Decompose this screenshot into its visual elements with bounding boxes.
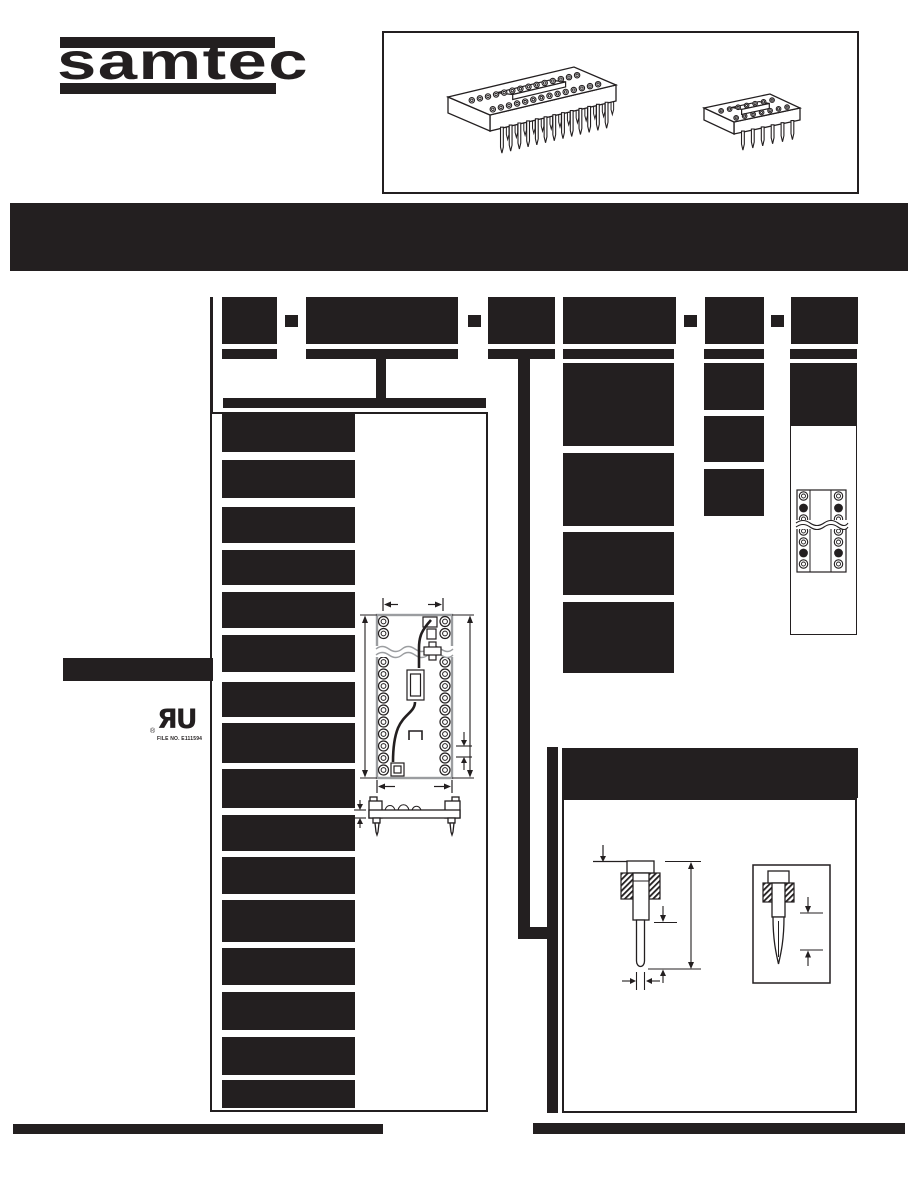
redacted-option-row xyxy=(222,592,355,628)
logo-bar-bottom xyxy=(60,83,276,94)
dash-separator xyxy=(684,315,697,327)
redacted-option-block xyxy=(563,602,674,673)
pin-detail-left-bar xyxy=(547,747,558,1113)
redacted-option-row xyxy=(222,900,355,942)
dash-separator xyxy=(468,315,481,327)
redacted-option-row xyxy=(222,682,355,717)
redacted-option-row xyxy=(222,413,355,452)
product-illustrations xyxy=(384,33,857,192)
socket-top-and-side-view-drawing xyxy=(352,594,492,846)
redacted-option-row xyxy=(222,815,355,851)
redacted-option-row xyxy=(222,723,355,763)
part-number-segment-6 xyxy=(791,297,858,344)
part-number-segment-2 xyxy=(306,297,458,344)
segment-underline-6 xyxy=(790,349,857,359)
redacted-option-row xyxy=(222,1080,355,1108)
catalog-page: samtec ЯU ® FILE NO. E11 xyxy=(0,0,918,1188)
options-panel-header-redacted xyxy=(223,398,486,408)
press-fit-pin-drawing xyxy=(753,865,830,983)
redacted-option-row xyxy=(222,460,355,498)
segment-underline-1 xyxy=(222,349,277,359)
redacted-option-block xyxy=(704,469,764,516)
segment-underline-3 xyxy=(488,349,555,359)
wide-dip-socket-illustration xyxy=(448,67,616,153)
ul-recognized-component-mark-icon: ЯU xyxy=(157,706,196,733)
dash-separator xyxy=(285,315,298,327)
connector-stub-segment2 xyxy=(376,358,386,399)
socket-side-view xyxy=(369,797,460,835)
redacted-option-row xyxy=(222,857,355,894)
narrow-dip-socket-illustration xyxy=(704,94,800,150)
dimension-lines xyxy=(377,780,452,793)
part-number-segment-1 xyxy=(222,297,277,344)
series-side-tab-redacted xyxy=(63,658,213,681)
redacted-option-block xyxy=(563,453,674,526)
polarity-pin-diagram xyxy=(790,425,857,635)
ul-file-number: FILE NO. E111594 xyxy=(157,736,202,742)
part-number-segment-5 xyxy=(705,297,764,344)
side-view-contacts xyxy=(385,805,421,810)
redacted-option-row xyxy=(222,550,355,585)
registered-trademark-symbol: ® xyxy=(150,728,155,735)
redacted-option-row xyxy=(222,635,355,672)
logo-wordmark: samtec xyxy=(57,36,309,88)
footer-bar-right xyxy=(533,1123,905,1134)
dash-separator xyxy=(771,315,784,327)
part-number-segment-3 xyxy=(488,297,555,344)
pin-detail-drawings xyxy=(564,800,855,1111)
dimension-lines xyxy=(383,598,443,611)
redacted-option-row xyxy=(222,507,355,543)
connector-line-left xyxy=(210,297,213,415)
redacted-option-block xyxy=(563,532,674,595)
redacted-option-row xyxy=(222,948,355,985)
redacted-option-block xyxy=(790,363,857,425)
title-banner-redacted xyxy=(10,203,908,271)
segment-underline-5 xyxy=(704,349,764,359)
footer-bar-left xyxy=(13,1124,383,1134)
connector-line-segment3 xyxy=(518,359,530,939)
pin-detail-header-redacted xyxy=(562,748,858,798)
segment-underline-4 xyxy=(563,349,674,359)
redacted-option-block xyxy=(563,363,674,446)
solder-tail-pin-drawing xyxy=(593,845,701,990)
redacted-option-block xyxy=(704,363,764,410)
redacted-option-row xyxy=(222,992,355,1030)
redacted-option-row xyxy=(222,769,355,808)
part-number-segment-4 xyxy=(563,297,676,344)
redacted-option-row xyxy=(222,1037,355,1075)
redacted-option-block xyxy=(704,416,764,462)
